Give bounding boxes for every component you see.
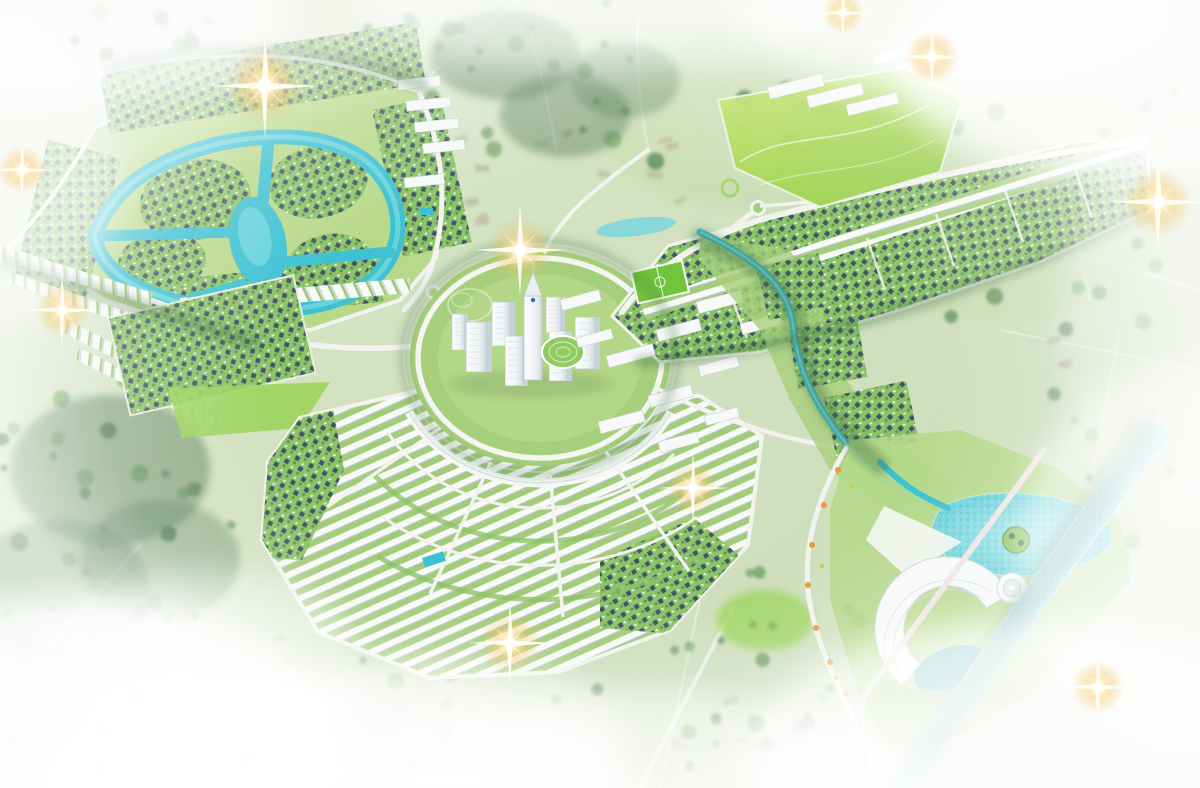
aerial-masterplan-render bbox=[0, 0, 1200, 788]
